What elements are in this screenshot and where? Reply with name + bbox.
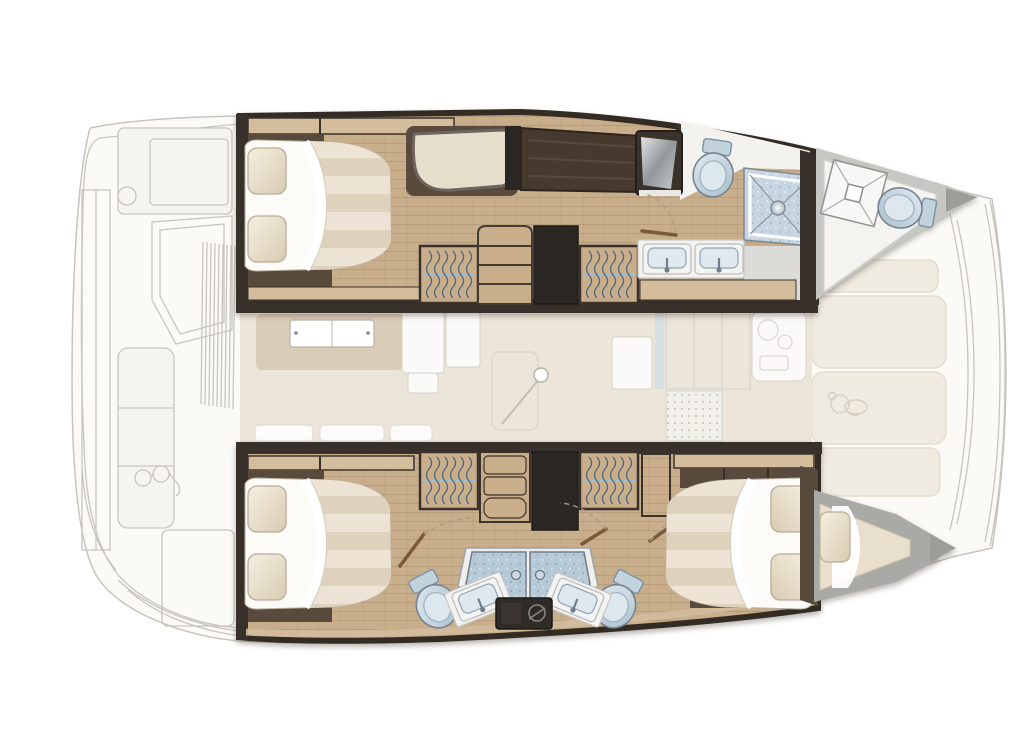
- sink-left: [643, 244, 691, 274]
- lower-forward-cabin: [666, 454, 818, 609]
- floor-plan-canvas: [0, 0, 1024, 731]
- mast-post: [534, 368, 548, 382]
- hanging-locker-right: [580, 452, 638, 509]
- galley-drainer-mat: [666, 391, 722, 441]
- table-hinge-1: [294, 331, 298, 335]
- cabinet-block-2: [446, 311, 480, 367]
- forepeak-wall: [800, 150, 816, 302]
- door-knob-right: [536, 571, 545, 580]
- galley-hinge-strip: [655, 311, 664, 389]
- double-bed: [666, 478, 812, 609]
- hanging-locker-left: [420, 452, 478, 509]
- double-bed: [245, 478, 391, 609]
- sofa-back-1: [255, 425, 313, 441]
- side-cabinet: [642, 454, 670, 516]
- shower-cabinet: [636, 131, 682, 196]
- sink-right: [695, 244, 743, 274]
- charcoal-closet: [532, 452, 578, 530]
- sofa-back-3: [390, 425, 432, 441]
- cabinet-block-3: [408, 373, 438, 393]
- sofa-back-2: [320, 425, 384, 441]
- floor-plan-svg: [0, 0, 1024, 731]
- saloon-ghost: [240, 311, 812, 442]
- dark-vanity-cabinet: [496, 598, 552, 629]
- drain-knob: [771, 201, 785, 215]
- top-shelf-band: [248, 456, 414, 470]
- vanity-cabinet-band: [640, 280, 796, 300]
- cabinet-block-1: [402, 311, 444, 373]
- galley-door-panel: [612, 337, 652, 389]
- charcoal-closet: [534, 226, 578, 304]
- staircase: [478, 226, 532, 304]
- bench-settee: [118, 348, 174, 528]
- shelf-unit: [480, 452, 530, 522]
- double-bed: [245, 140, 391, 271]
- table-hinge-2: [366, 331, 370, 335]
- top-shelf-band: [674, 454, 814, 468]
- door-knob-left: [512, 571, 521, 580]
- sunpad-cushion-4: [812, 448, 940, 496]
- vberth-pillow: [820, 512, 850, 562]
- sunpad-cushion-2: [812, 296, 946, 368]
- chaise-cushion: [413, 130, 512, 190]
- hanging-locker-right: [580, 246, 638, 303]
- foot-band: [248, 270, 332, 287]
- hanging-locker-left: [420, 246, 478, 303]
- charcoal-block: [505, 126, 521, 190]
